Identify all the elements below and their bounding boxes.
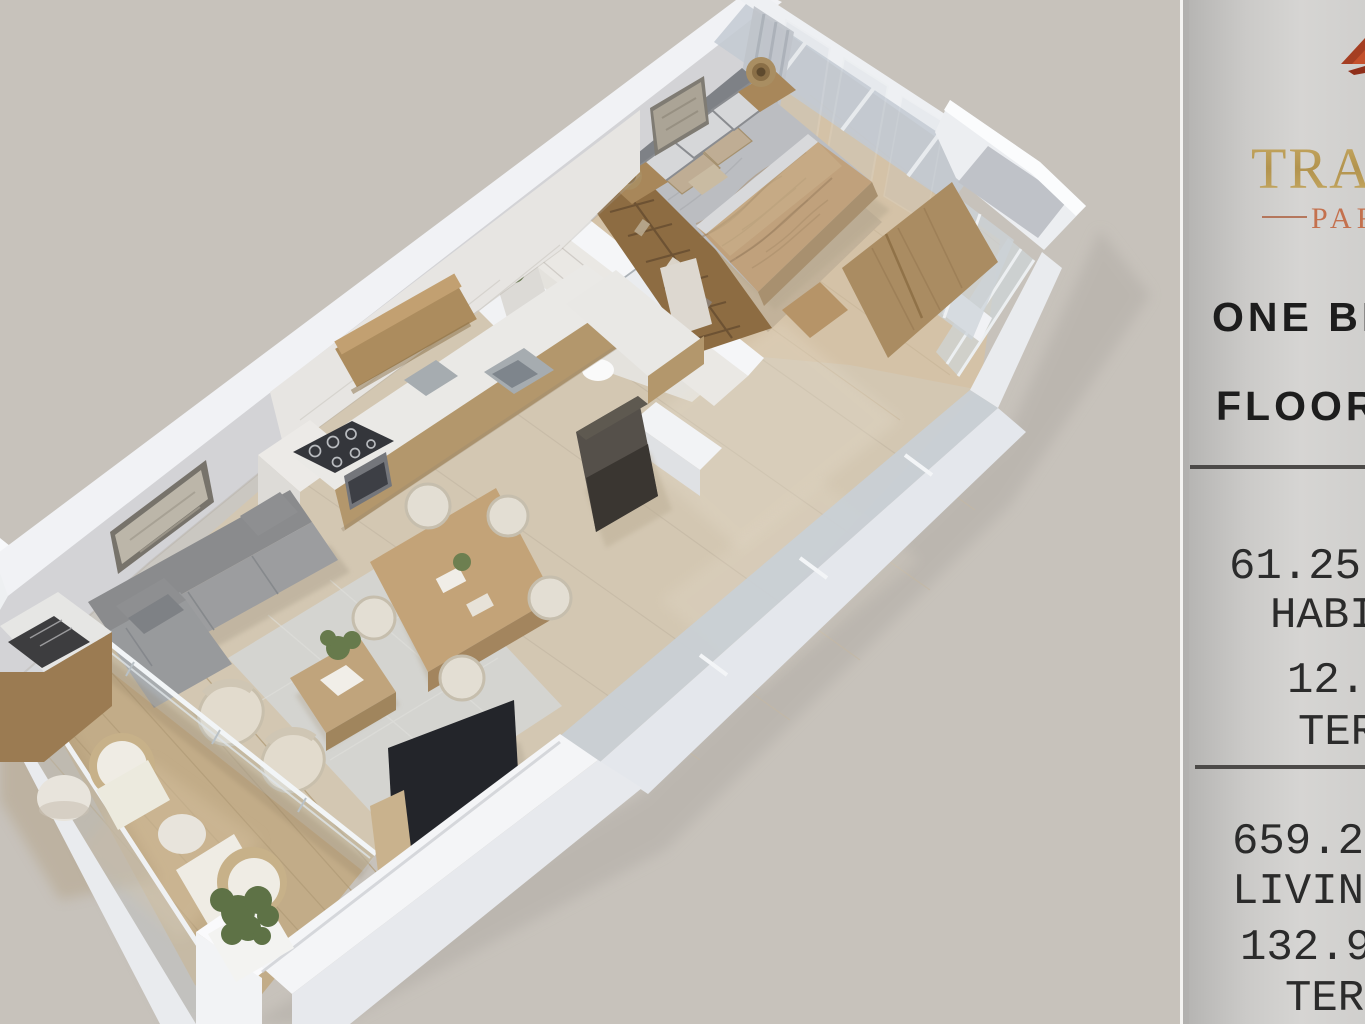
svg-text:TERR: TERR <box>1285 974 1365 1024</box>
svg-text:ONE BED: ONE BED <box>1212 294 1365 340</box>
svg-text:LIVING: LIVING <box>1232 867 1365 917</box>
svg-text:TERR: TERR <box>1298 708 1365 758</box>
svg-text:659.2: 659.2 <box>1232 817 1364 867</box>
svg-text:TRANQ: TRANQ <box>1251 136 1365 201</box>
svg-text:FLOOR P: FLOOR P <box>1216 383 1365 429</box>
svg-text:PARK: PARK <box>1311 202 1365 235</box>
svg-text:12.3: 12.3 <box>1287 656 1365 706</box>
svg-text:HABIT: HABIT <box>1270 591 1365 641</box>
svg-text:132.9: 132.9 <box>1240 923 1365 973</box>
svg-text:61.25: 61.25 <box>1229 542 1361 592</box>
